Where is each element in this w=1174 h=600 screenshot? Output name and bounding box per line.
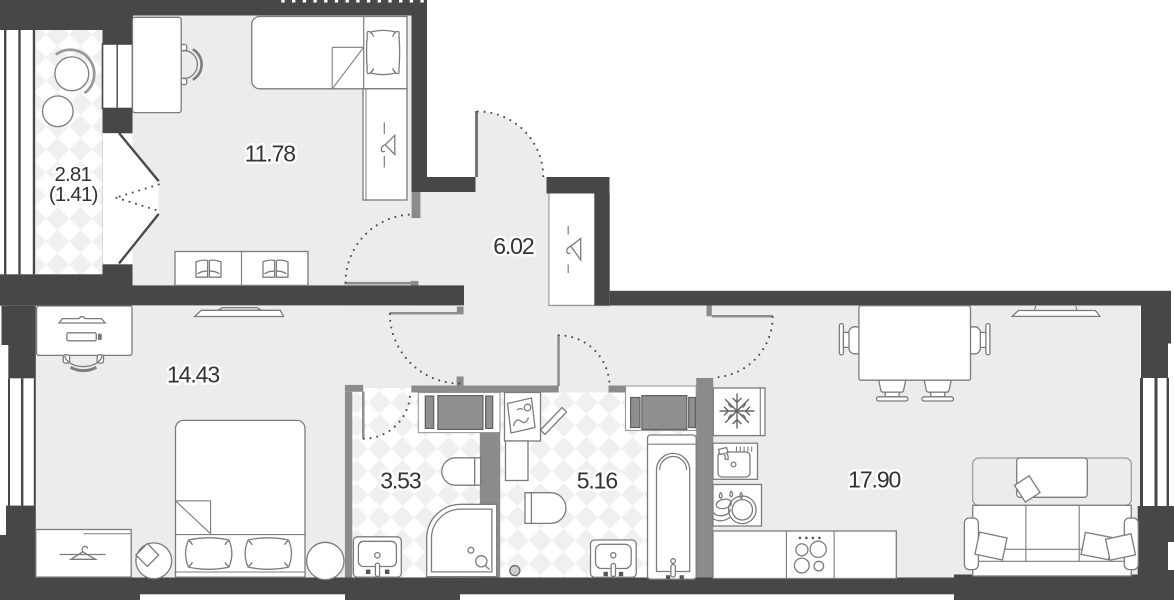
svg-text:17.90: 17.90 bbox=[848, 466, 900, 492]
svg-text:(1.41): (1.41) bbox=[49, 183, 98, 206]
svg-text:6.02: 6.02 bbox=[493, 233, 534, 259]
svg-text:3.53: 3.53 bbox=[380, 468, 421, 494]
svg-text:11.78: 11.78 bbox=[245, 140, 296, 166]
svg-text:14.43: 14.43 bbox=[167, 361, 219, 387]
svg-text:5.16: 5.16 bbox=[577, 468, 618, 494]
